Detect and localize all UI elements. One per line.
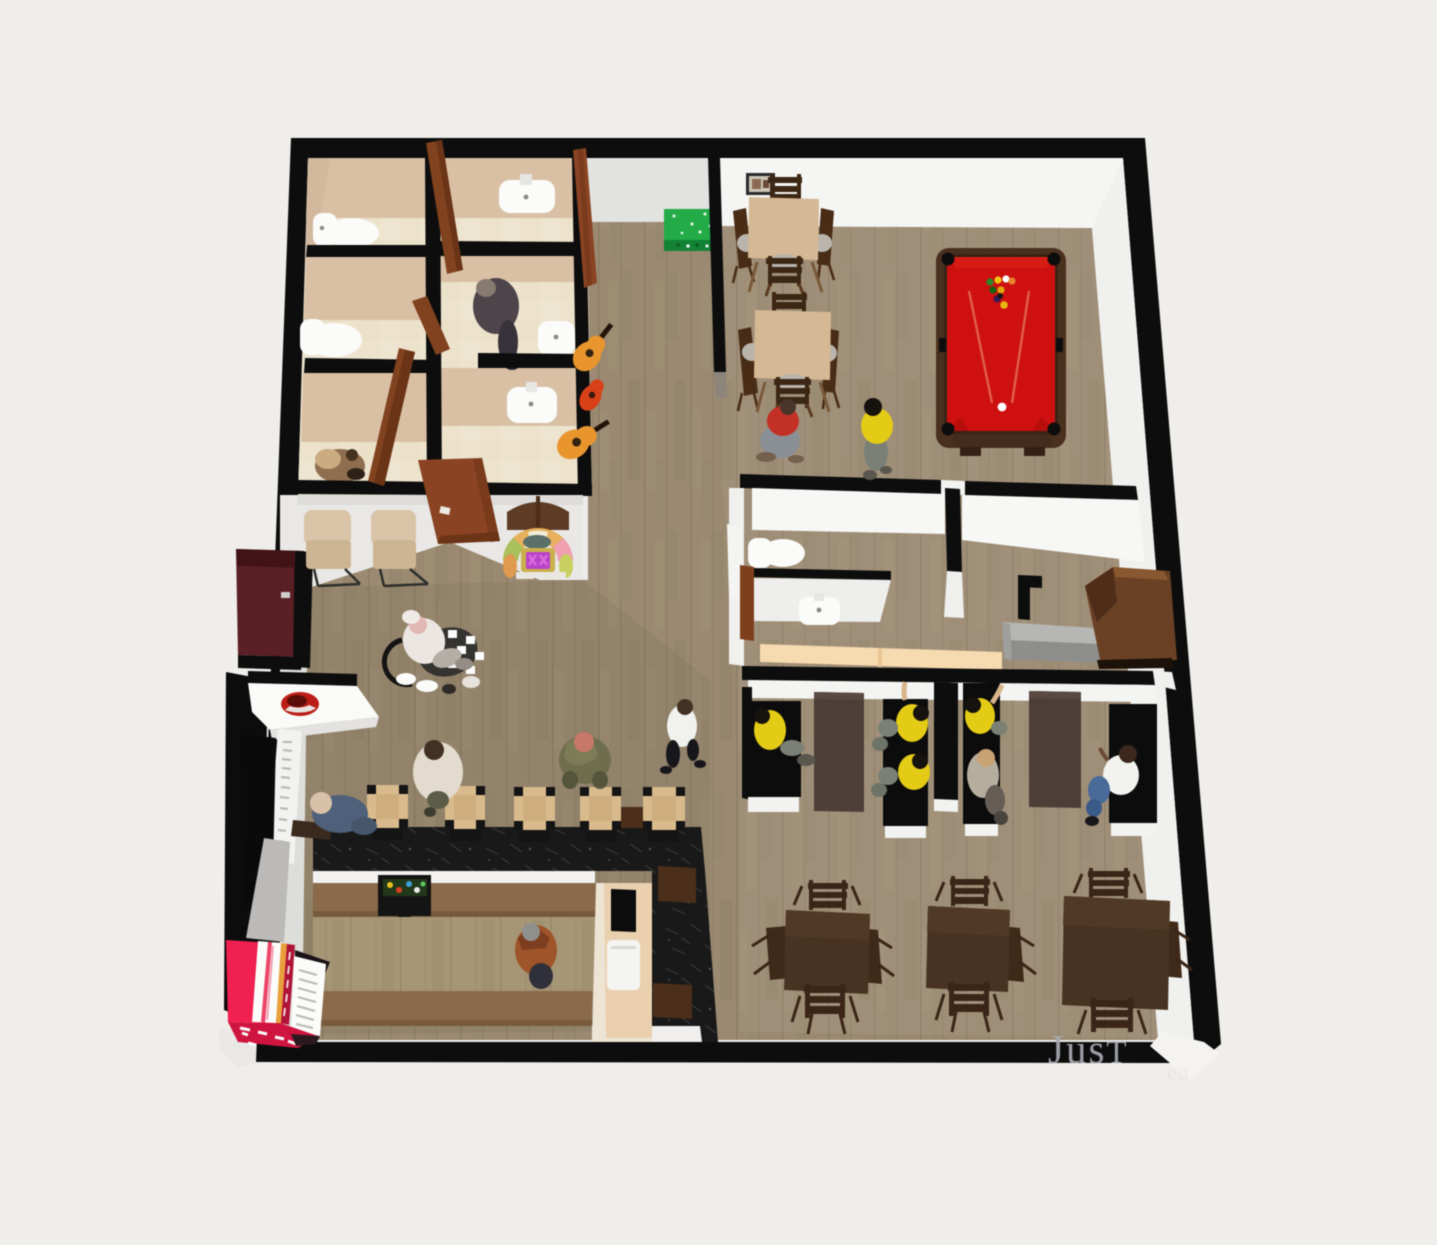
svg-text:ea: ea bbox=[1167, 1060, 1191, 1085]
